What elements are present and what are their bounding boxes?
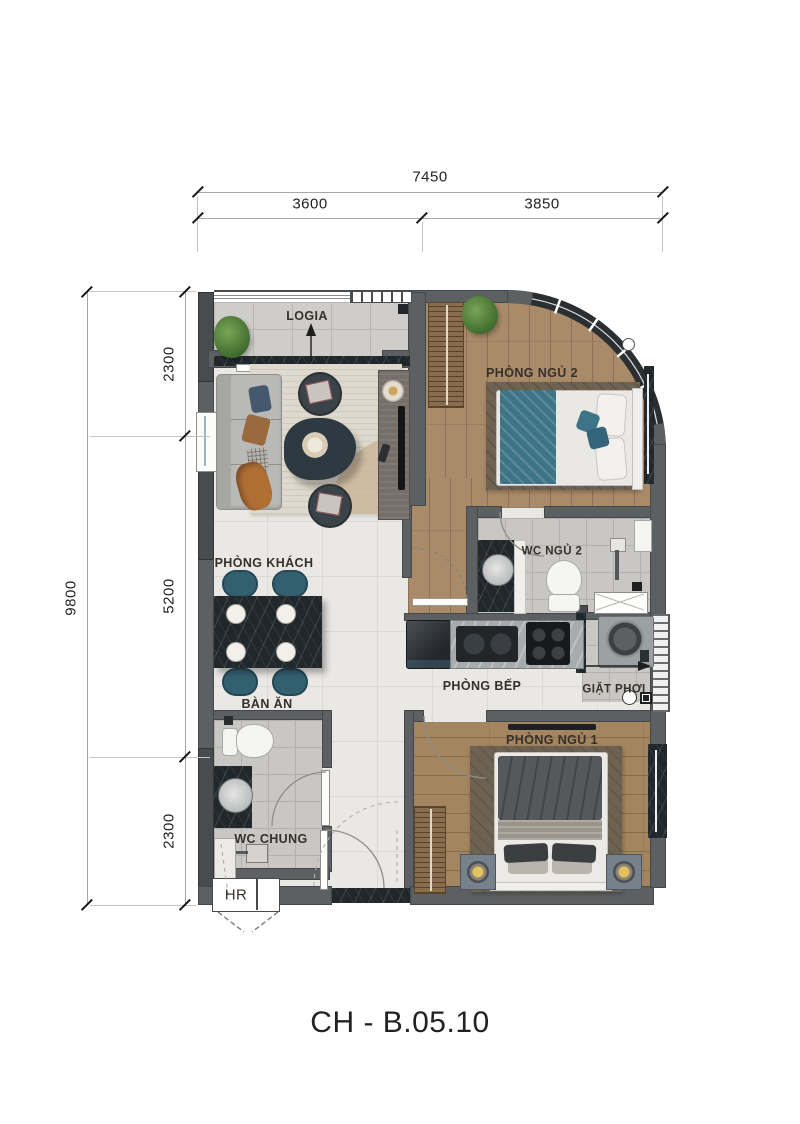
- dim-left-seg-2: 5200: [162, 578, 177, 613]
- bedroom1-door-swing: [424, 716, 486, 778]
- room-label-logia: LOGIA: [286, 310, 328, 323]
- floorplan-sheet: LOGIA PHÒNG KHÁCH PHÒNG NGỦ 2 WC NGỦ 2 P…: [0, 0, 800, 1124]
- entrance-door-swing: [326, 830, 384, 888]
- room-label-wc-bedroom2: WC NGỦ 2: [522, 546, 583, 558]
- room-label-wc-shared: WC CHUNG: [234, 833, 307, 846]
- dim-top-sub-line: [198, 218, 663, 219]
- dim-left-total-line: [87, 292, 88, 905]
- dim-extension: [662, 196, 663, 252]
- room-label-dining: BÀN ĂN: [241, 698, 292, 711]
- dim-extension: [422, 222, 423, 252]
- dim-top-total-line: [198, 192, 663, 193]
- dim-top-total: 7450: [412, 170, 447, 185]
- room-label-bedroom2: PHÒNG NGỦ 2: [486, 367, 578, 380]
- room-label-kitchen: PHÒNG BẾP: [443, 680, 522, 693]
- dim-extension: [90, 436, 210, 437]
- dim-extension: [90, 757, 210, 758]
- room-label-laundry: GIẶT PHƠI: [582, 684, 645, 696]
- logia-direction-arrow: [306, 323, 316, 362]
- dim-top-seg-2: 3850: [524, 197, 559, 212]
- wc1-door-swing: [272, 772, 326, 826]
- laundry-flow-arrow: [584, 661, 651, 671]
- dim-extension: [197, 196, 198, 252]
- dim-top-seg-1: 3600: [292, 197, 327, 212]
- entrance-clearance-arc: [314, 802, 398, 886]
- dim-left-seg-1: 2300: [162, 346, 177, 381]
- riser-dash-right: [252, 912, 278, 932]
- bedroom2-door-swing-dashed: [413, 548, 467, 602]
- dim-left-seg-3: 2300: [162, 813, 177, 848]
- room-label-bedroom1: PHÒNG NGỦ 1: [506, 734, 598, 747]
- dim-left-total: 9800: [64, 580, 79, 615]
- dim-extension: [90, 905, 196, 906]
- dim-left-sub-line: [185, 292, 186, 905]
- annotation-overlay: [0, 0, 800, 1124]
- room-label-living: PHÒNG KHÁCH: [215, 557, 314, 570]
- riser-dash-left: [218, 912, 244, 932]
- unit-title: CH - B.05.10: [310, 1006, 489, 1040]
- dim-extension: [90, 291, 196, 292]
- room-label-riser: HR: [225, 888, 247, 903]
